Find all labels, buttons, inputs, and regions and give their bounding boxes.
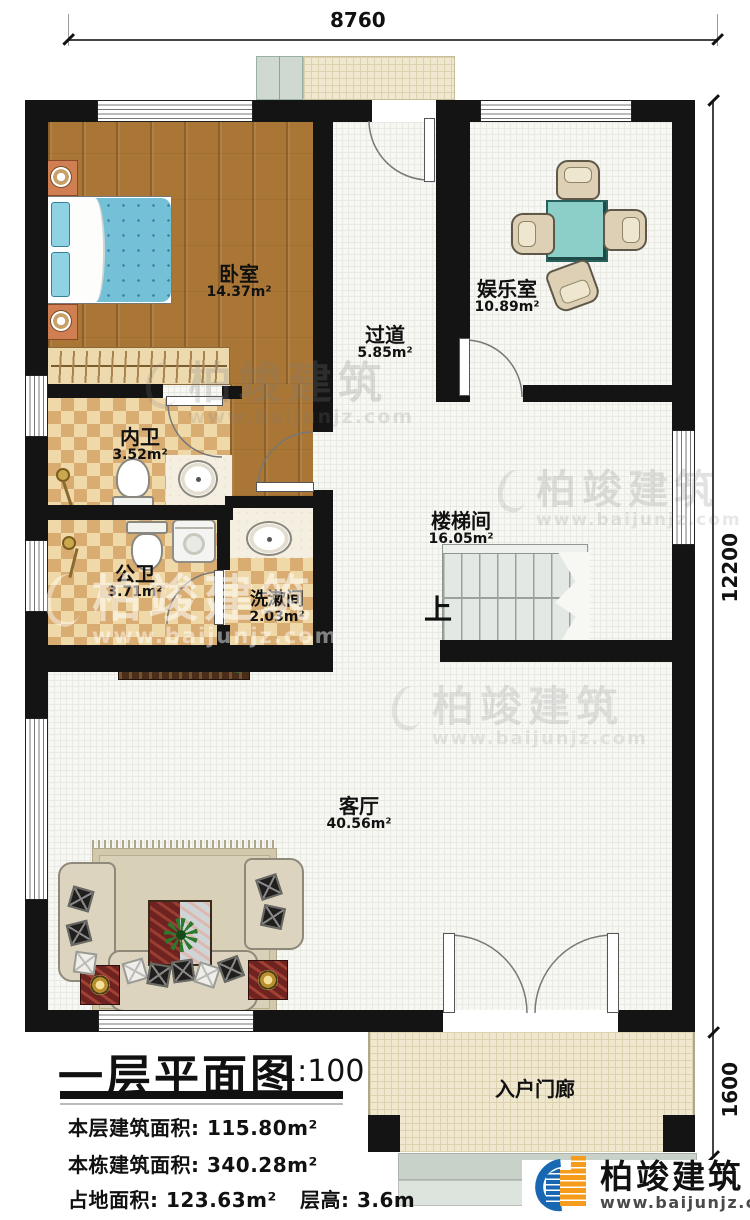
room-name: 客厅 [339, 795, 379, 817]
door-leaf-entry-right [607, 933, 619, 1013]
room-name: 公卫 [115, 563, 155, 585]
room-area: 40.56m² [326, 817, 391, 833]
room-name: 卧室 [219, 263, 259, 285]
door-swing-arcs [0, 0, 750, 1220]
room-area: 2.03m² [249, 610, 304, 626]
room-label-porch: 入户门廊 [455, 1078, 615, 1100]
room-area: 16.05m² [428, 532, 493, 548]
room-name: 内卫 [120, 426, 160, 448]
company-name-text: 柏竣建筑 [600, 1160, 750, 1193]
room-area: 10.89m² [474, 300, 539, 316]
stat-building-area: 本栋建筑面积: 340.28m² [68, 1149, 318, 1178]
stat-floor-height: 层高: 3.6m [300, 1184, 415, 1213]
stat-floor-area: 本层建筑面积: 115.80m² [68, 1112, 318, 1141]
door-leaf-washroom [214, 570, 224, 625]
room-area: 14.37m² [206, 285, 271, 301]
dimension-line [68, 39, 718, 41]
door-leaf-entry-left [443, 933, 455, 1013]
door-leaf-terrace [424, 118, 435, 182]
room-name: 入户门廊 [495, 1078, 575, 1100]
door-leaf-entertainment [459, 338, 470, 396]
room-name: 楼梯间 [431, 510, 491, 532]
company-name: 柏竣建筑 www.baijunjz.com [600, 1160, 750, 1212]
room-area: 3.52m² [112, 448, 167, 464]
room-name: 洗漱间 [250, 590, 304, 610]
room-label-ensuite: 内卫 3.52m² [90, 426, 190, 464]
dimension-right-height: 12200 [718, 533, 742, 603]
room-label-bedroom: 卧室 14.37m² [175, 263, 303, 301]
company-logo-icon [534, 1152, 594, 1218]
title-underline-thin [60, 1103, 343, 1105]
dimension-porch-depth: 1600 [718, 1062, 742, 1118]
room-label-entertainment: 娱乐室 10.89m² [447, 278, 567, 316]
dimension-line [712, 100, 714, 1032]
room-label-publicbath: 公卫 3.71m² [85, 563, 185, 601]
room-label-stairwell: 楼梯间 16.05m² [401, 510, 521, 548]
room-label-washroom: 洗漱间 2.03m² [225, 590, 329, 626]
company-website: www.baijunjz.com [600, 1193, 750, 1212]
room-name: 过道 [365, 324, 405, 346]
dimension-line [712, 1032, 714, 1156]
room-area: 3.71m² [107, 585, 162, 601]
dimension-top-width: 8760 [330, 8, 386, 32]
stairs-up-label: 上 [424, 588, 452, 628]
room-label-corridor: 过道 5.85m² [335, 324, 435, 362]
room-area: 5.85m² [357, 346, 412, 362]
door-leaf-bedroom-suite [256, 482, 314, 492]
room-name: 娱乐室 [477, 278, 537, 300]
drawing-scale: 1:100 [278, 1054, 364, 1089]
title-underline-thick [60, 1091, 343, 1099]
door-leaf-ensuite [166, 396, 223, 406]
stat-land-area: 占地面积: 123.63m² [68, 1184, 277, 1213]
floor-plan-canvas: 卧室 14.37m² 过道 5.85m² 娱乐室 10.89m² 内卫 3.52… [0, 0, 750, 1220]
room-label-living: 客厅 40.56m² [297, 795, 421, 833]
